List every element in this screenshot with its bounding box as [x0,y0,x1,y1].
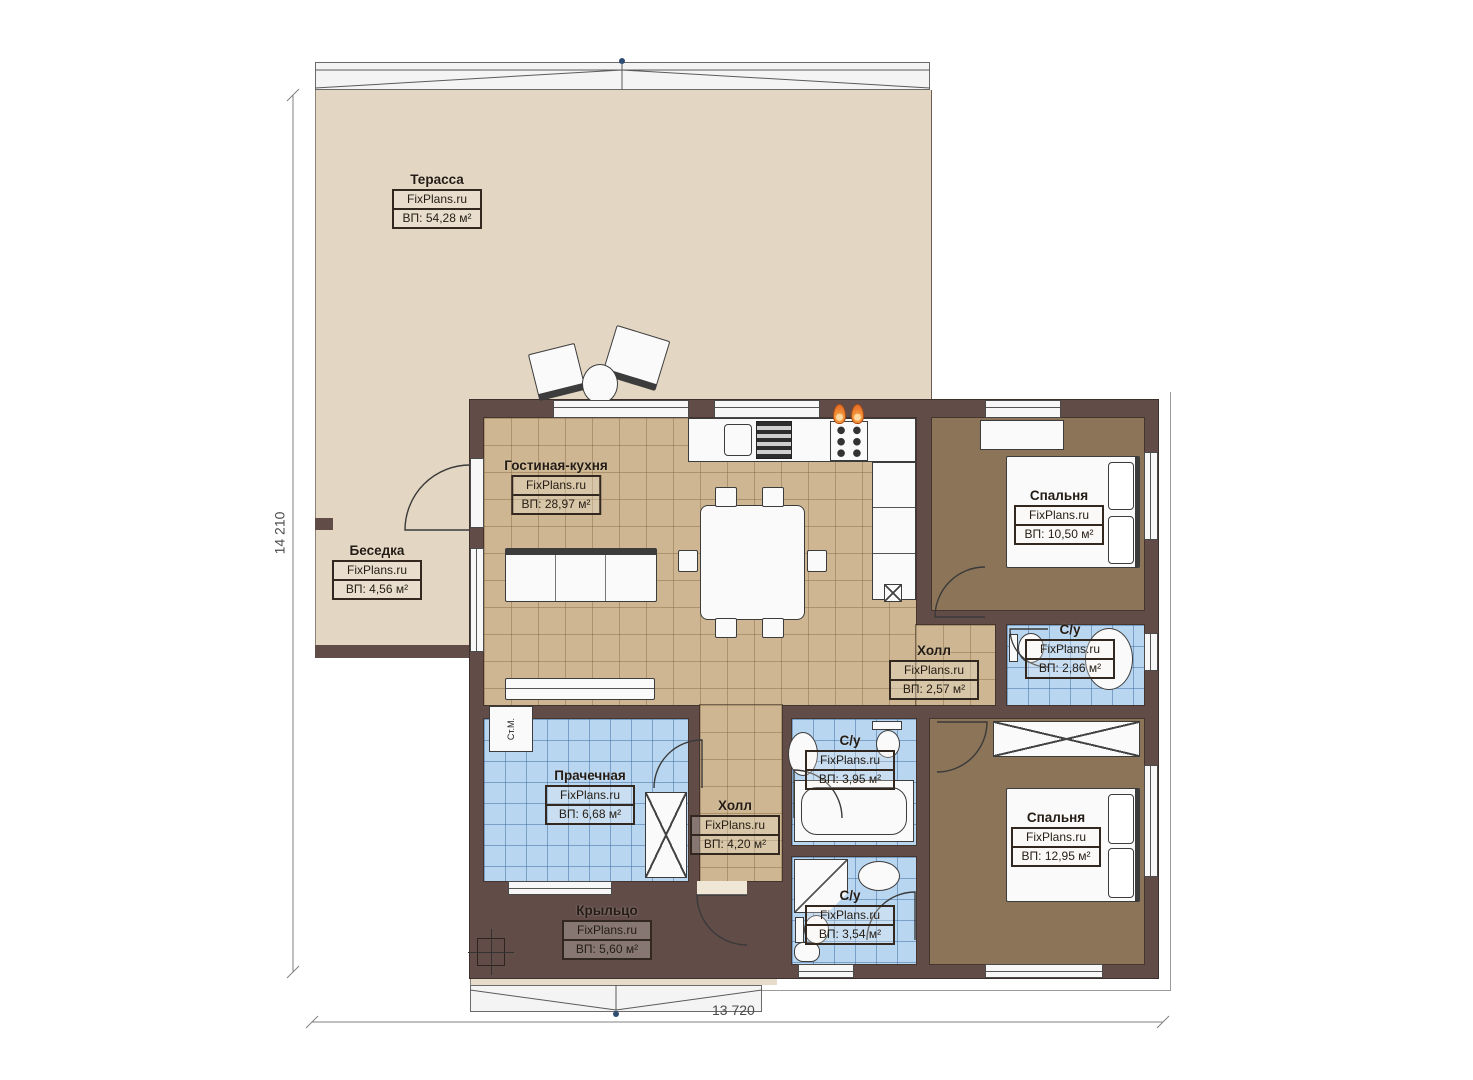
room-name: Гостиная-кухня [504,458,607,473]
room-name: Терасса [392,172,482,187]
room-info-box: FixPlans.ru ВП: 12,95 м² [1011,827,1101,867]
brand-label: FixPlans.ru [1013,829,1099,846]
brand-label: FixPlans.ru [1027,641,1113,658]
sofa [505,548,657,602]
room-info-box: FixPlans.ru ВП: 6,68 м² [545,785,635,825]
room-info-box: FixPlans.ru ВП: 3,95 м² [805,750,895,790]
gas-flame-icon [833,404,846,424]
pillow [1108,516,1134,564]
brand-label: FixPlans.ru [513,477,599,494]
room-info-box: FixPlans.ru ВП: 4,20 м² [690,815,780,855]
room-info-box: FixPlans.ru ВП: 3,54 м² [805,905,895,945]
window-bathroom1-right [1144,633,1158,671]
room-label-hall-1: Холл FixPlans.ru ВП: 2,57 м² [889,643,979,700]
dining-table [700,505,805,620]
room-name: Прачечная [545,768,635,783]
dimension-line-left [287,89,299,978]
kitchen-sink [724,424,752,456]
gazebo-wall-stub [315,518,333,530]
window-bedroom2-right [1144,765,1158,877]
terrace-table [582,364,618,404]
brand-label: FixPlans.ru [334,562,420,579]
wardrobe-bedroom2 [993,721,1140,757]
floor-plan: Ст.М. Терасса FixPlans.ru ВП: 54,28 м² Б… [0,0,1473,1080]
area-label: ВП: 4,56 м² [334,579,420,598]
terrace-canopy-band [315,62,930,90]
dimension-width-label: 13 720 [712,1002,755,1018]
room-name: Холл [690,798,780,813]
room-info-box: FixPlans.ru ВП: 10,50 м² [1014,505,1104,545]
area-label: ВП: 2,86 м² [1027,658,1113,677]
window-bedroom1-right [1144,452,1158,540]
area-label: ВП: 12,95 м² [1013,846,1099,865]
room-label-porch: Крыльцо FixPlans.ru ВП: 5,60 м² [562,903,652,960]
porch-column [477,938,505,966]
brand-label: FixPlans.ru [807,907,893,924]
water-heater [794,942,820,962]
room-name: Холл [889,643,979,658]
washing-machine: Ст.М. [489,706,533,752]
chair [762,487,784,507]
washbasin [858,861,900,891]
area-label: ВП: 2,57 м² [891,679,977,698]
chair [678,550,698,572]
brand-label: FixPlans.ru [564,922,650,939]
pillow [1108,794,1134,844]
area-label: ВП: 10,50 м² [1016,524,1102,543]
room-label-gazebo: Беседка FixPlans.ru ВП: 4,56 м² [332,543,422,600]
window-kitchen [714,400,820,418]
room-name: Спальня [1011,810,1101,825]
chair [715,487,737,507]
room-label-bathroom-1: С/у FixPlans.ru ВП: 2,86 м² [1025,622,1115,679]
room-gazebo [315,400,471,648]
room-info-box: FixPlans.ru ВП: 4,56 м² [332,560,422,600]
door-opening-terrace [470,458,484,528]
brand-label: FixPlans.ru [891,662,977,679]
brand-label: FixPlans.ru [547,787,633,804]
toilet-tank [1009,634,1018,662]
area-label: ВП: 28,97 м² [513,494,599,513]
kitchen-dishwasher [756,421,792,459]
room-info-box: FixPlans.ru ВП: 2,57 м² [889,660,979,700]
area-label: ВП: 4,20 м² [692,834,778,853]
stove [830,421,868,461]
washing-machine-label: Ст.М. [506,718,516,740]
chair [715,618,737,638]
room-name: С/у [805,733,895,748]
room-info-box: FixPlans.ru ВП: 5,60 м² [562,920,652,960]
toilet-tank [872,721,902,730]
room-name: Спальня [1014,488,1104,503]
brand-label: FixPlans.ru [692,817,778,834]
door-opening-entrance [697,881,747,895]
room-name: С/у [805,888,895,903]
chair [762,618,784,638]
gazebo-wall-bottom [315,645,470,658]
area-label: ВП: 6,68 м² [547,804,633,823]
room-name: Крыльцо [562,903,652,918]
kitchen-cabinet-column [872,462,916,600]
room-info-box: FixPlans.ru ВП: 54,28 м² [392,189,482,229]
kitchen-vent-marker [884,584,902,602]
tv-console [505,678,655,700]
room-info-box: FixPlans.ru ВП: 28,97 м² [511,475,601,515]
room-name: С/у [1025,622,1115,637]
pillow [1108,462,1134,510]
area-label: ВП: 54,28 м² [394,208,480,227]
wardrobe-bedroom1 [980,420,1064,450]
window-laundry-bottom [508,881,612,895]
laundry-closet [645,792,687,878]
room-label-bedroom-2: Спальня FixPlans.ru ВП: 12,95 м² [1011,810,1101,867]
room-label-bedroom-1: Спальня FixPlans.ru ВП: 10,50 м² [1014,488,1104,545]
window-bedroom2-bottom [985,964,1103,978]
room-name: Беседка [332,543,422,558]
window-bathroom3-bottom [798,964,854,978]
room-label-terrace: Терасса FixPlans.ru ВП: 54,28 м² [392,172,482,229]
room-label-hall-2: Холл FixPlans.ru ВП: 4,20 м² [690,798,780,855]
brand-label: FixPlans.ru [394,191,480,208]
window-living-terrace [553,400,689,418]
window-living-left [470,548,484,652]
area-label: ВП: 3,95 м² [807,769,893,788]
toilet-tank [795,917,804,943]
pillow [1108,848,1134,898]
window-bedroom1-top [985,400,1061,418]
brand-label: FixPlans.ru [807,752,893,769]
room-label-living-kitchen: Гостиная-кухня FixPlans.ru ВП: 28,97 м² [504,458,607,515]
room-label-laundry: Прачечная FixPlans.ru ВП: 6,68 м² [545,768,635,825]
brand-label: FixPlans.ru [1016,507,1102,524]
area-label: ВП: 5,60 м² [564,939,650,958]
room-label-bathroom-2: С/у FixPlans.ru ВП: 3,95 м² [805,733,895,790]
chair [807,550,827,572]
gas-flame-icon [851,404,864,424]
room-label-bathroom-3: С/у FixPlans.ru ВП: 3,54 м² [805,888,895,945]
dimension-height-label: 14 210 [271,512,287,555]
area-label: ВП: 3,54 м² [807,924,893,943]
kitchen-counter [688,418,916,462]
room-info-box: FixPlans.ru ВП: 2,86 м² [1025,639,1115,679]
